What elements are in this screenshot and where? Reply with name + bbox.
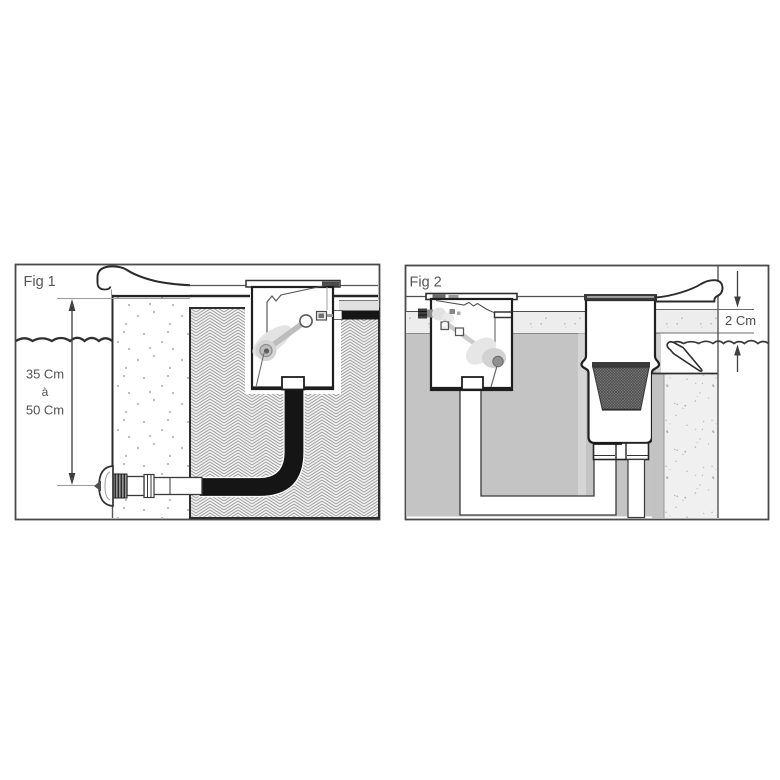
svg-text:50 Cm: 50 Cm <box>26 403 64 418</box>
svg-text:à: à <box>42 385 49 399</box>
svg-text:Fig 1: Fig 1 <box>24 274 56 290</box>
svg-text:35 Cm: 35 Cm <box>26 367 64 382</box>
svg-text:Fig 2: Fig 2 <box>410 275 442 291</box>
svg-text:2 Cm: 2 Cm <box>725 313 756 328</box>
